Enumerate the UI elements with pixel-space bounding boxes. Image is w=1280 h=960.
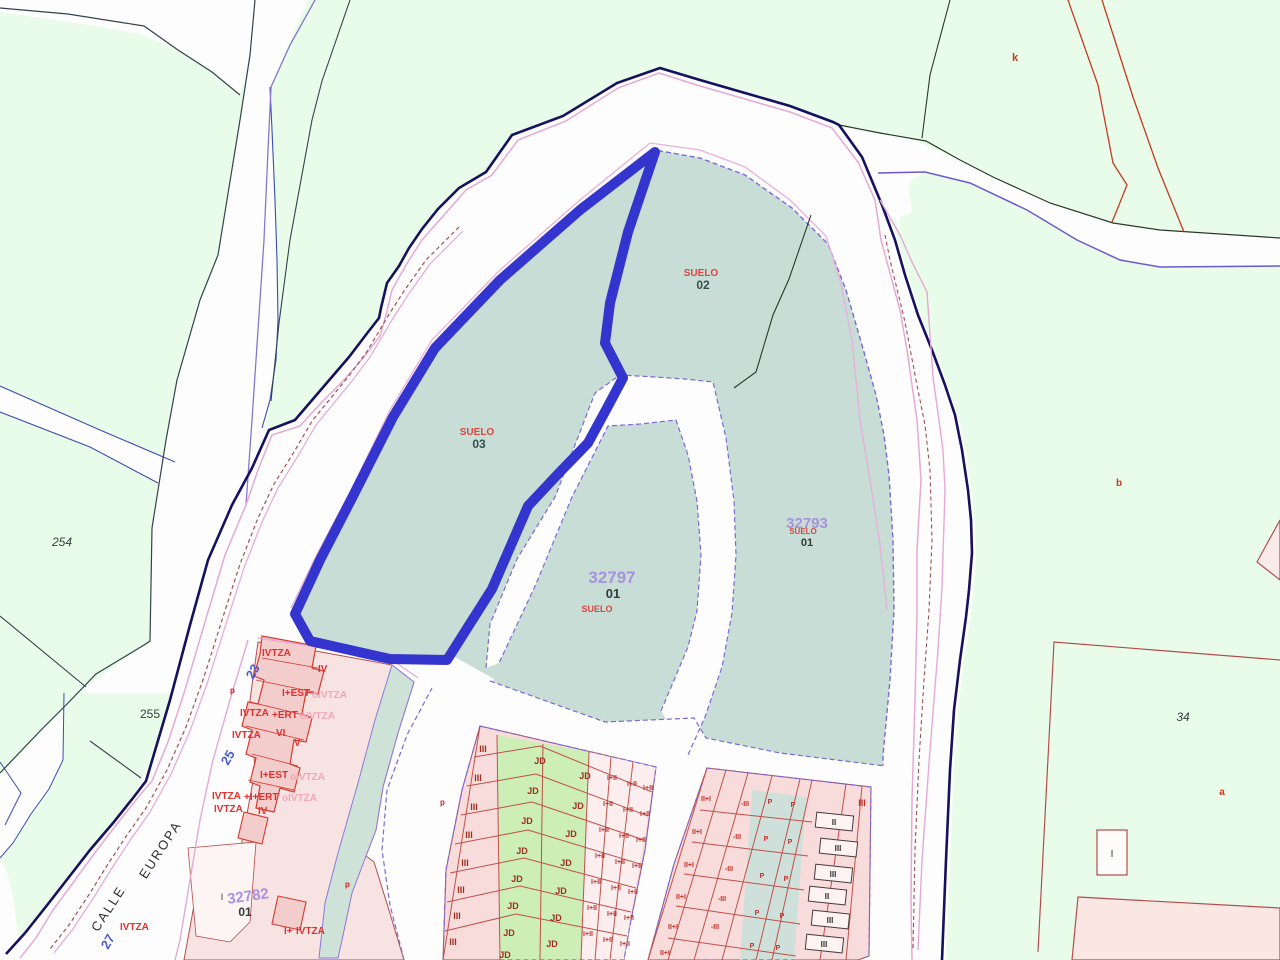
svg-text:P: P xyxy=(776,945,781,952)
svg-text:I+II: I+II xyxy=(624,915,634,922)
svg-text:II: II xyxy=(832,818,836,827)
svg-text:IVTZA: IVTZA xyxy=(240,708,269,719)
svg-text:p: p xyxy=(440,798,445,807)
svg-text:V: V xyxy=(294,738,301,749)
svg-text:I+II: I+II xyxy=(587,905,597,912)
svg-text:255: 255 xyxy=(140,707,160,721)
svg-text:I+II: I+II xyxy=(603,801,613,808)
svg-text:I+II: I+II xyxy=(643,785,653,792)
svg-text:01: 01 xyxy=(606,586,620,601)
svg-text:I: I xyxy=(221,892,224,902)
svg-text:k: k xyxy=(1012,52,1019,64)
svg-text:I+II: I+II xyxy=(628,889,638,896)
svg-text:IVTZA: IVTZA xyxy=(262,648,291,659)
svg-text:II+I: II+I xyxy=(701,796,711,803)
svg-text:SUELO: SUELO xyxy=(789,527,817,536)
svg-text:JD: JD xyxy=(527,786,539,796)
svg-text:P: P xyxy=(750,943,755,950)
svg-text:P: P xyxy=(755,910,760,917)
svg-text:p: p xyxy=(345,880,350,889)
svg-text:JD: JD xyxy=(555,886,567,896)
svg-text:P: P xyxy=(760,873,765,880)
svg-text:III: III xyxy=(449,937,457,947)
svg-text:JD: JD xyxy=(516,846,528,856)
svg-text:JD: JD xyxy=(499,950,511,960)
svg-text:JD: JD xyxy=(579,771,591,781)
svg-text:+ERT: +ERT xyxy=(272,710,298,721)
svg-text:III: III xyxy=(835,844,842,853)
svg-text:IVTZA: IVTZA xyxy=(232,730,261,741)
svg-text:I+II: I+II xyxy=(599,827,609,834)
svg-text:III: III xyxy=(827,916,834,925)
svg-text:III: III xyxy=(830,870,837,879)
svg-text:01: 01 xyxy=(238,905,252,919)
svg-text:III: III xyxy=(858,798,866,808)
svg-text:IV: IV xyxy=(318,664,328,675)
svg-text:I+EST: I+EST xyxy=(282,688,310,699)
svg-text:-III: -III xyxy=(711,924,719,931)
svg-text:JD: JD xyxy=(534,756,546,766)
svg-text:II+I: II+I xyxy=(676,894,686,901)
svg-text:JD: JD xyxy=(550,913,562,923)
svg-text:P: P xyxy=(784,876,789,883)
svg-text:III: III xyxy=(821,940,828,949)
svg-text:I+II: I+II xyxy=(607,911,617,918)
svg-text:b: b xyxy=(1116,478,1122,489)
svg-text:oIVTZA: oIVTZA xyxy=(312,690,347,701)
svg-text:03: 03 xyxy=(472,437,486,451)
svg-text:P: P xyxy=(788,839,793,846)
svg-text:a: a xyxy=(1219,787,1225,798)
svg-text:oIVTZA: oIVTZA xyxy=(282,793,317,804)
svg-text:I+II: I+II xyxy=(615,859,625,866)
svg-text:P: P xyxy=(780,913,785,920)
svg-text:JD: JD xyxy=(521,816,533,826)
svg-text:JD: JD xyxy=(503,928,515,938)
svg-text:IVTZA: IVTZA xyxy=(214,804,243,815)
svg-text:IVTZA: IVTZA xyxy=(296,926,325,937)
svg-text:III: III xyxy=(457,885,465,895)
svg-text:-III: -III xyxy=(741,801,749,808)
svg-text:IVTZA: IVTZA xyxy=(212,791,241,802)
svg-text:oIVTZA: oIVTZA xyxy=(300,711,335,722)
svg-text:I+II: I+II xyxy=(619,833,629,840)
svg-text:III: III xyxy=(461,858,469,868)
svg-text:P: P xyxy=(764,836,769,843)
svg-text:III: III xyxy=(453,911,461,921)
svg-text:II+I: II+I xyxy=(660,950,670,957)
svg-text:I+II: I+II xyxy=(636,837,646,844)
svg-text:III: III xyxy=(479,744,487,754)
svg-text:JD: JD xyxy=(572,801,584,811)
svg-text:JD: JD xyxy=(565,829,577,839)
svg-text:I+EST: I+EST xyxy=(260,770,288,781)
svg-text:p: p xyxy=(230,686,235,695)
svg-text:I+II: I+II xyxy=(620,941,630,948)
svg-text:II+I: II+I xyxy=(684,862,694,869)
svg-text:I+II: I+II xyxy=(627,781,637,788)
svg-text:01: 01 xyxy=(801,537,813,549)
svg-text:I+II: I+II xyxy=(640,811,650,818)
svg-text:-III: -III xyxy=(718,896,726,903)
svg-text:IVTZA: IVTZA xyxy=(120,922,149,933)
svg-text:P: P xyxy=(768,799,773,806)
svg-text:JD: JD xyxy=(507,901,519,911)
svg-text:III: III xyxy=(470,802,478,812)
svg-text:I+II: I+II xyxy=(611,885,621,892)
svg-text:-III: -III xyxy=(733,834,741,841)
svg-text:+I+ERT: +I+ERT xyxy=(244,792,278,803)
svg-text:SUELO: SUELO xyxy=(581,604,612,614)
svg-text:III: III xyxy=(465,830,473,840)
svg-text:P: P xyxy=(791,802,796,809)
svg-text:I: I xyxy=(1111,849,1114,860)
svg-text:I+II: I+II xyxy=(603,937,613,944)
svg-text:I+: I+ xyxy=(284,926,293,937)
svg-text:32797: 32797 xyxy=(588,568,635,587)
svg-text:VI: VI xyxy=(276,728,286,739)
svg-text:II+I: II+I xyxy=(692,829,702,836)
svg-text:II: II xyxy=(825,892,829,901)
svg-text:254: 254 xyxy=(51,535,72,549)
svg-text:oIVTZA: oIVTZA xyxy=(290,772,325,783)
svg-text:III: III xyxy=(474,773,482,783)
svg-text:II+I: II+I xyxy=(668,924,678,931)
svg-text:IV: IV xyxy=(258,806,268,817)
svg-text:JD: JD xyxy=(560,858,572,868)
svg-text:I+II: I+II xyxy=(583,931,593,938)
svg-text:JD: JD xyxy=(546,939,558,949)
svg-text:JD: JD xyxy=(511,874,523,884)
svg-text:I+II: I+II xyxy=(623,807,633,814)
svg-text:I+II: I+II xyxy=(591,879,601,886)
svg-text:02: 02 xyxy=(696,278,710,292)
svg-text:34: 34 xyxy=(1176,710,1190,724)
svg-text:I+II: I+II xyxy=(607,775,617,782)
svg-text:-III: -III xyxy=(725,866,733,873)
svg-text:I+II: I+II xyxy=(595,853,605,860)
svg-text:I+II: I+II xyxy=(632,863,642,870)
